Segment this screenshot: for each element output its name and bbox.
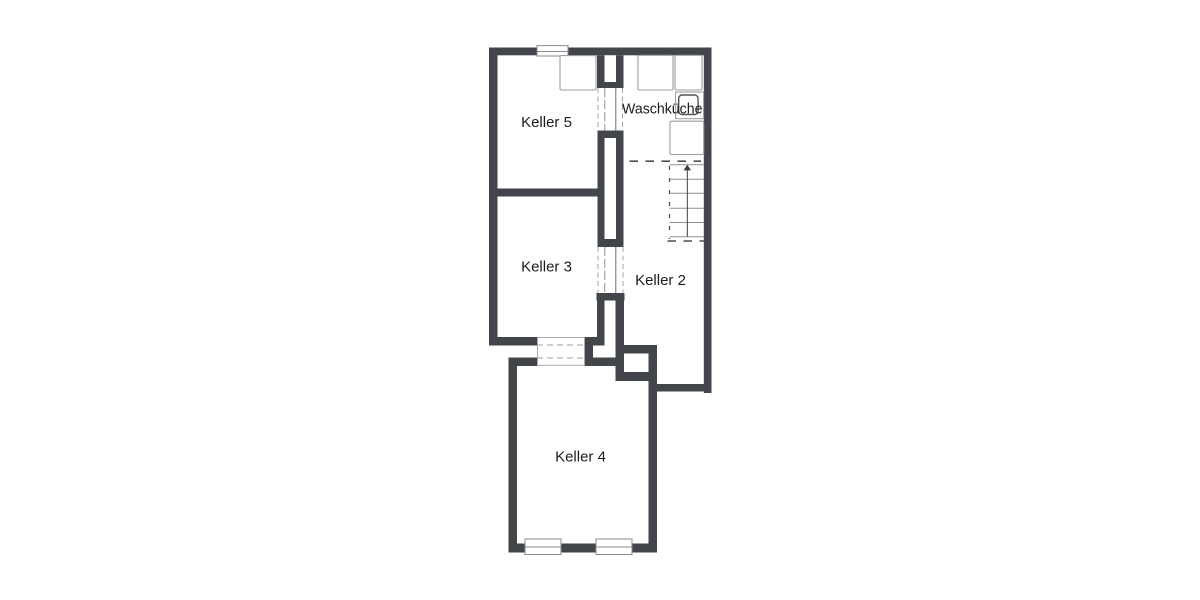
svg-text:Keller 5: Keller 5 <box>521 114 572 131</box>
svg-text:Waschküche: Waschküche <box>622 101 703 118</box>
svg-text:Keller 3: Keller 3 <box>521 259 572 276</box>
svg-text:Keller 2: Keller 2 <box>635 272 686 289</box>
svg-text:Keller 4: Keller 4 <box>555 449 606 466</box>
